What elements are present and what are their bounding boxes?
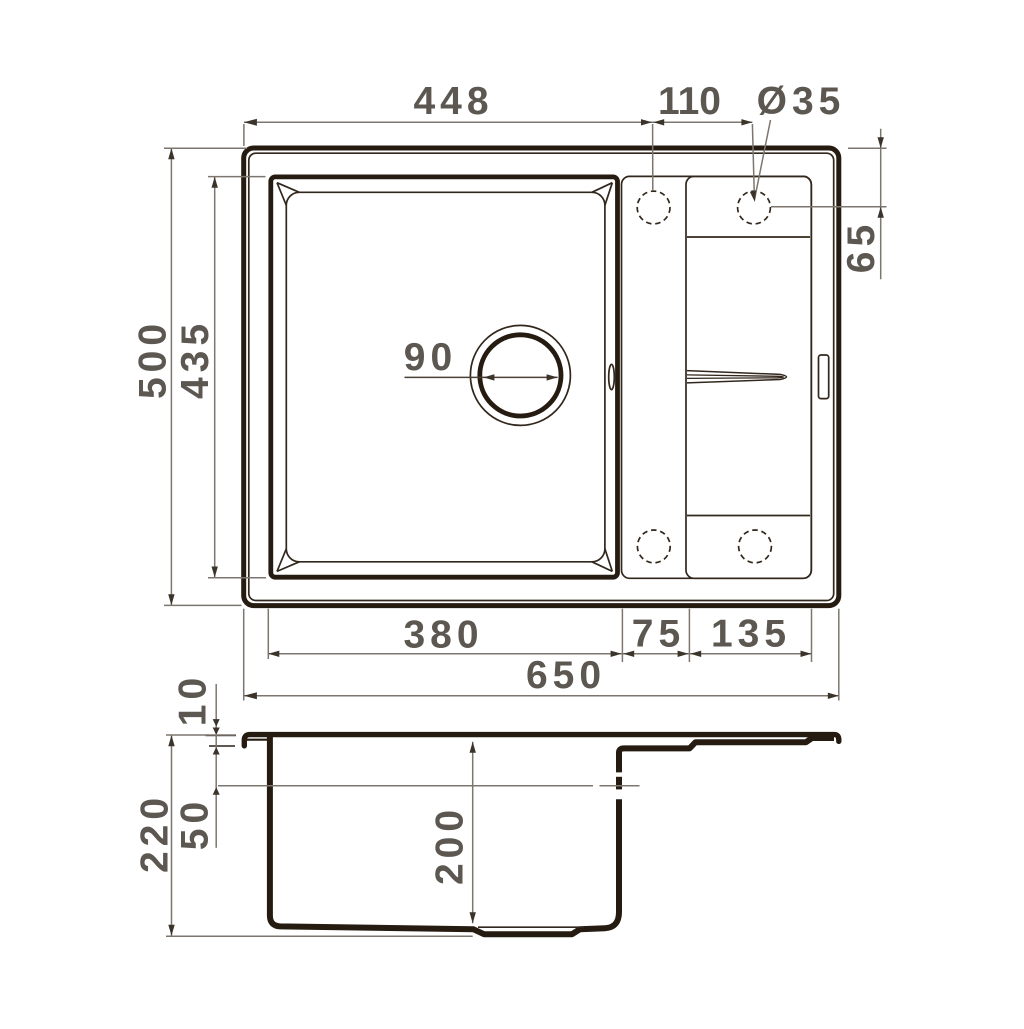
svg-text:500: 500 <box>131 319 174 399</box>
svg-text:435: 435 <box>174 319 217 399</box>
svg-text:380: 380 <box>403 614 483 657</box>
svg-text:135: 135 <box>711 612 791 655</box>
svg-text:110: 110 <box>658 80 721 123</box>
svg-text:448: 448 <box>413 80 493 123</box>
svg-text:200: 200 <box>428 805 471 885</box>
svg-text:90: 90 <box>404 336 457 379</box>
svg-text:650: 650 <box>526 654 606 697</box>
svg-text:50: 50 <box>173 797 216 850</box>
svg-text:220: 220 <box>133 793 176 873</box>
svg-text:Ø35: Ø35 <box>757 80 846 123</box>
svg-text:75: 75 <box>632 612 685 655</box>
svg-text:10: 10 <box>171 673 214 726</box>
svg-text:65: 65 <box>840 220 883 273</box>
